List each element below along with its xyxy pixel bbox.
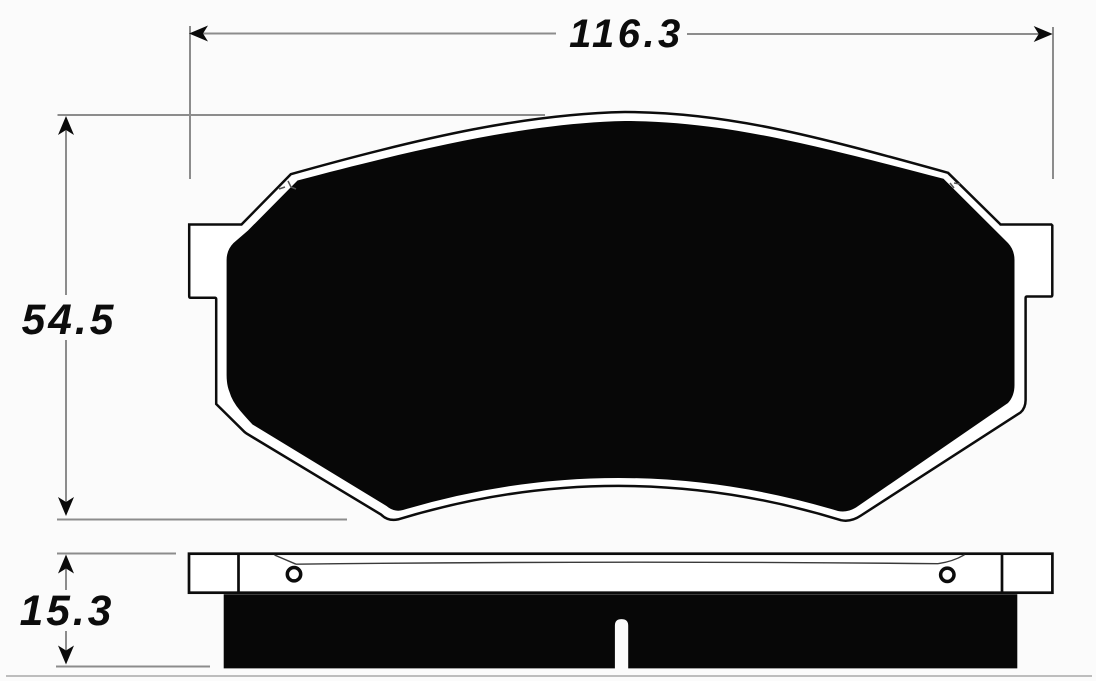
svg-text:54.5: 54.5	[22, 297, 117, 344]
svg-text:15.3: 15.3	[20, 588, 115, 635]
svg-text:116.3: 116.3	[569, 12, 684, 56]
